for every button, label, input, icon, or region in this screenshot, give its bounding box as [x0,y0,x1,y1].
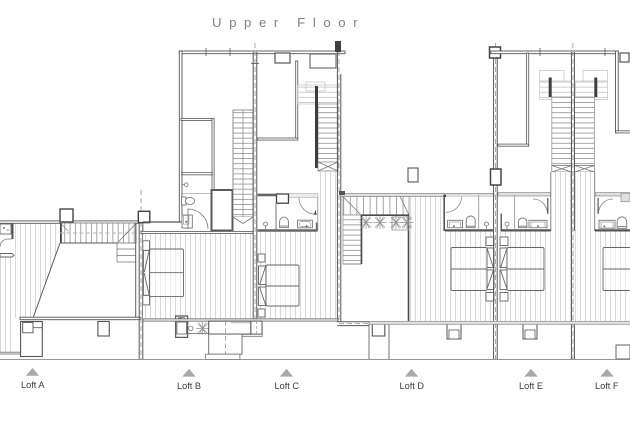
svg-text:Loft E: Loft E [519,381,543,391]
svg-text:Loft C: Loft C [275,381,300,391]
svg-text:Loft D: Loft D [400,381,425,391]
svg-text:Loft F: Loft F [595,381,619,391]
svg-text:Loft A: Loft A [21,380,45,390]
svg-text:Loft B: Loft B [177,381,201,391]
svg-text:Upper Floor: Upper Floor [212,15,365,30]
